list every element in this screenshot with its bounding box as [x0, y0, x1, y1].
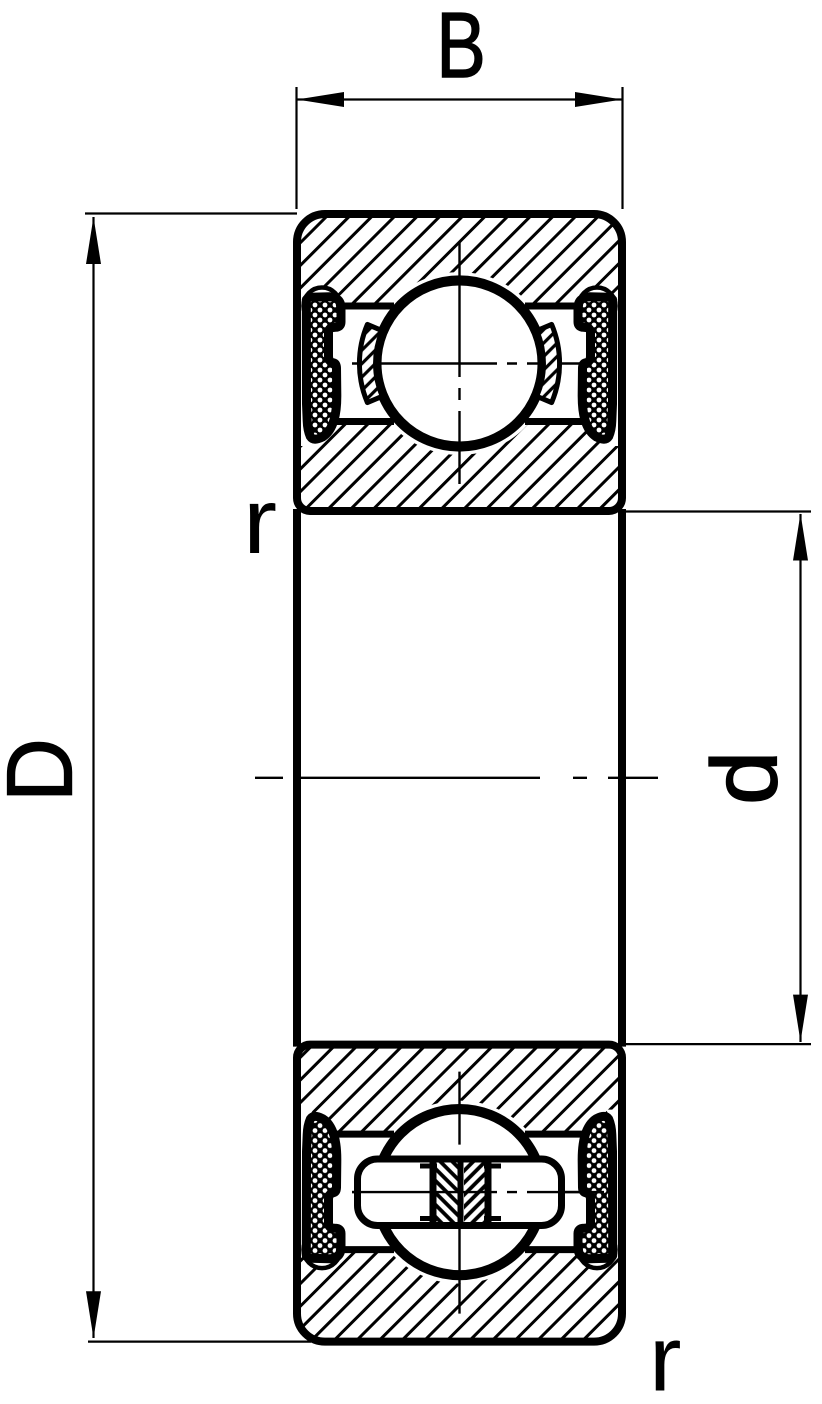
svg-text:r: r — [243, 469, 277, 573]
svg-text:r: r — [649, 1308, 682, 1399]
svg-text:B: B — [436, 0, 486, 97]
svg-text:d: d — [694, 751, 797, 805]
svg-text:D: D — [0, 738, 92, 802]
